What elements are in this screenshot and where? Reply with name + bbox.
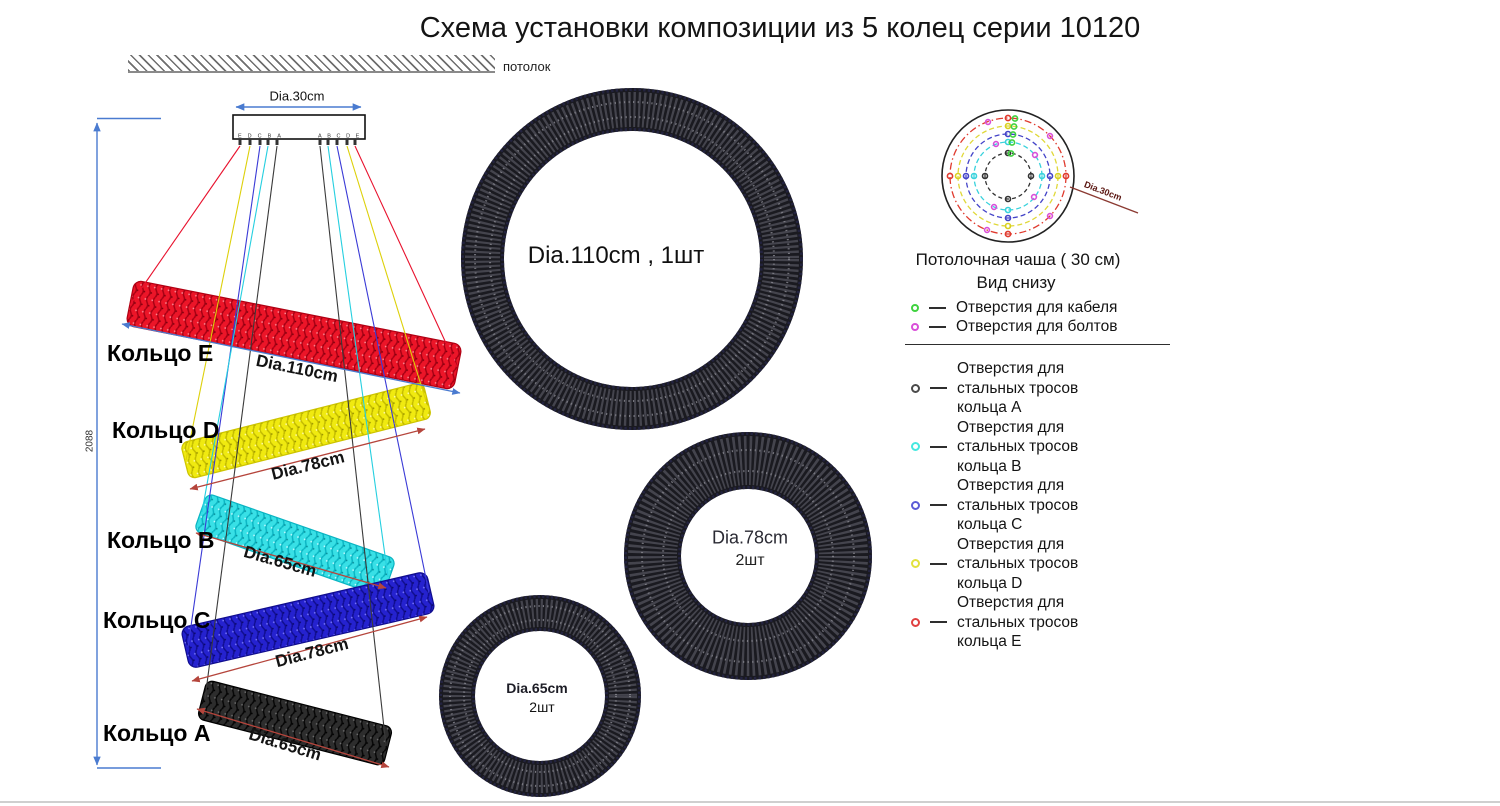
diagram-graphics: EDCBA ABCDE [0,0,1500,806]
legend-label: Отверстия для кабеля [956,298,1117,317]
legend-item-ring-c: Отверстия для стальных тросов кольца C [905,476,1195,535]
legend-label: Отверстия для стальных тросов кольца B [957,418,1078,477]
ring-65-label: Dia.65cm [506,680,567,696]
ring-b-label: Кольцо B [107,527,214,554]
ceiling-cup-diagram [942,110,1138,242]
ring-a-label: Кольцо A [103,720,210,747]
mounting-plate: EDCBA ABCDE [233,115,365,145]
ring-d-hole-swatch-icon [911,559,920,568]
ring-110-label: Dia.110cm , 1шт [528,242,705,270]
legend-item-ring-a: Отверстия для стальных тросов кольца A [905,359,1195,418]
legend-item-bolt-holes: Отверстия для болтов [905,317,1195,336]
page-bottom-edge [0,801,1500,803]
legend-dash [930,621,947,623]
legend-label: Отверстия для стальных тросов кольца E [957,593,1078,652]
ring-b-hole-swatch-icon [911,442,920,451]
legend-item-ring-b: Отверстия для стальных тросов кольца B [905,418,1195,477]
plate-hooks [239,139,357,145]
ring-b-side-view [194,493,396,597]
height-dimension-label: 2088 [85,430,96,452]
legend-dash [929,326,946,328]
legend-label: Отверстия для стальных тросов кольца C [957,476,1078,535]
ceiling-hatch [128,55,495,73]
legend-label: Отверстия для стальных тросов кольца A [957,359,1078,418]
legend-item-ring-d: Отверстия для стальных тросов кольца D [905,535,1195,594]
legend: Отверстия для кабеля Отверстия для болто… [905,298,1195,652]
legend-dash [929,307,946,309]
ring-e-label: Кольцо E [107,340,213,367]
plate-hook-letters-right: ABCDE [318,134,365,140]
ring-65-qty: 2шт [529,699,554,715]
legend-item-cable-holes: Отверстия для кабеля [905,298,1195,317]
ring-e-hole-swatch-icon [911,618,920,627]
legend-dash [930,446,947,448]
bolt-hole-swatch-icon [911,323,919,331]
ring-a-hole-swatch-icon [911,384,920,393]
legend-label: Отверстия для стальных тросов кольца D [957,535,1078,594]
ring-78-qty: 2шт [735,552,764,570]
ring-65-top-view [441,597,640,796]
ring-78-label: Dia.78cm [712,528,788,549]
legend-label: Отверстия для болтов [956,317,1117,336]
cup-caption-line2: Вид снизу [977,273,1056,293]
ring-d-label: Кольцо D [112,417,219,444]
legend-dash [930,504,947,506]
legend-divider [905,344,1170,345]
plate-dimension-label: Dia.30cm [270,89,325,104]
cup-caption-line1: Потолочная чаша ( 30 см) [916,250,1121,270]
cable-hole-swatch-icon [911,304,919,312]
ring-c-hole-swatch-icon [911,501,920,510]
legend-dash [930,387,947,389]
diagram-canvas: EDCBA ABCDE [0,0,1500,806]
page-title: Схема установки композиции из 5 колец се… [380,12,1180,45]
ring-c-label: Кольцо C [103,607,210,634]
ceiling-label: потолок [503,59,550,74]
legend-dash [930,563,947,565]
plate-hook-letters-left: EDCBA [238,134,287,140]
legend-item-ring-e: Отверстия для стальных тросов кольца E [905,593,1195,652]
